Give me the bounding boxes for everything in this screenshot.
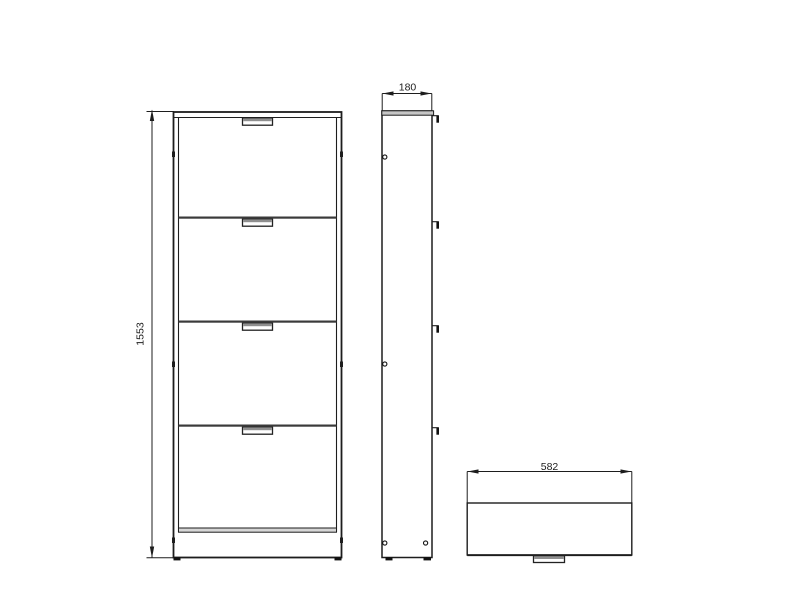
fitting-hole (424, 541, 428, 545)
flap-handle (243, 323, 273, 330)
dimension-arrow-left-icon (382, 91, 393, 95)
pin-mark (172, 152, 175, 158)
flap-divider (179, 217, 337, 219)
fitting-hole (383, 541, 387, 545)
side-view (382, 111, 439, 561)
technical-drawing-canvas: 1553 (0, 0, 800, 600)
hinge-hook (432, 428, 439, 435)
side-depth-dimension: 180 (382, 82, 432, 111)
side-foot (424, 557, 432, 560)
flap-divider (179, 321, 337, 323)
dimension-arrow-left-icon (467, 469, 478, 473)
front-height-dimension: 1553 (135, 110, 175, 559)
side-body-outline (382, 111, 432, 558)
height-dimension-value: 1553 (135, 322, 147, 346)
top-view (467, 503, 632, 563)
width-dimension-value: 582 (541, 461, 559, 473)
front-bottom-shelf-band (179, 528, 337, 532)
dimension-arrow-down-icon (150, 547, 154, 559)
pin-mark (172, 362, 175, 368)
hinge-hook (432, 116, 439, 123)
side-top-panel-band (382, 111, 434, 115)
hinge-hook (432, 326, 439, 333)
front-foot (335, 557, 342, 560)
side-foot (386, 557, 393, 560)
flap-handle (243, 427, 273, 434)
depth-dimension-value: 180 (399, 82, 417, 94)
flap-divider (179, 425, 337, 427)
front-view (172, 112, 343, 560)
fitting-hole (383, 362, 387, 366)
pin-mark (172, 538, 175, 544)
flap-handle (534, 556, 565, 563)
top-width-dimension: 582 (467, 461, 632, 503)
pin-mark (340, 362, 343, 368)
hinge-hook (432, 222, 439, 229)
dimension-arrow-right-icon (421, 91, 432, 95)
front-carcass-outline (174, 112, 342, 558)
dimension-arrow-right-icon (621, 469, 632, 473)
flap-handle (243, 219, 273, 226)
top-view-outline (467, 503, 632, 555)
front-foot (174, 557, 181, 560)
fitting-hole (383, 155, 387, 159)
pin-mark (340, 538, 343, 544)
flap-handle (243, 118, 273, 125)
shoe-cabinet-drawing: 1553 (0, 0, 800, 600)
pin-mark (340, 152, 343, 158)
